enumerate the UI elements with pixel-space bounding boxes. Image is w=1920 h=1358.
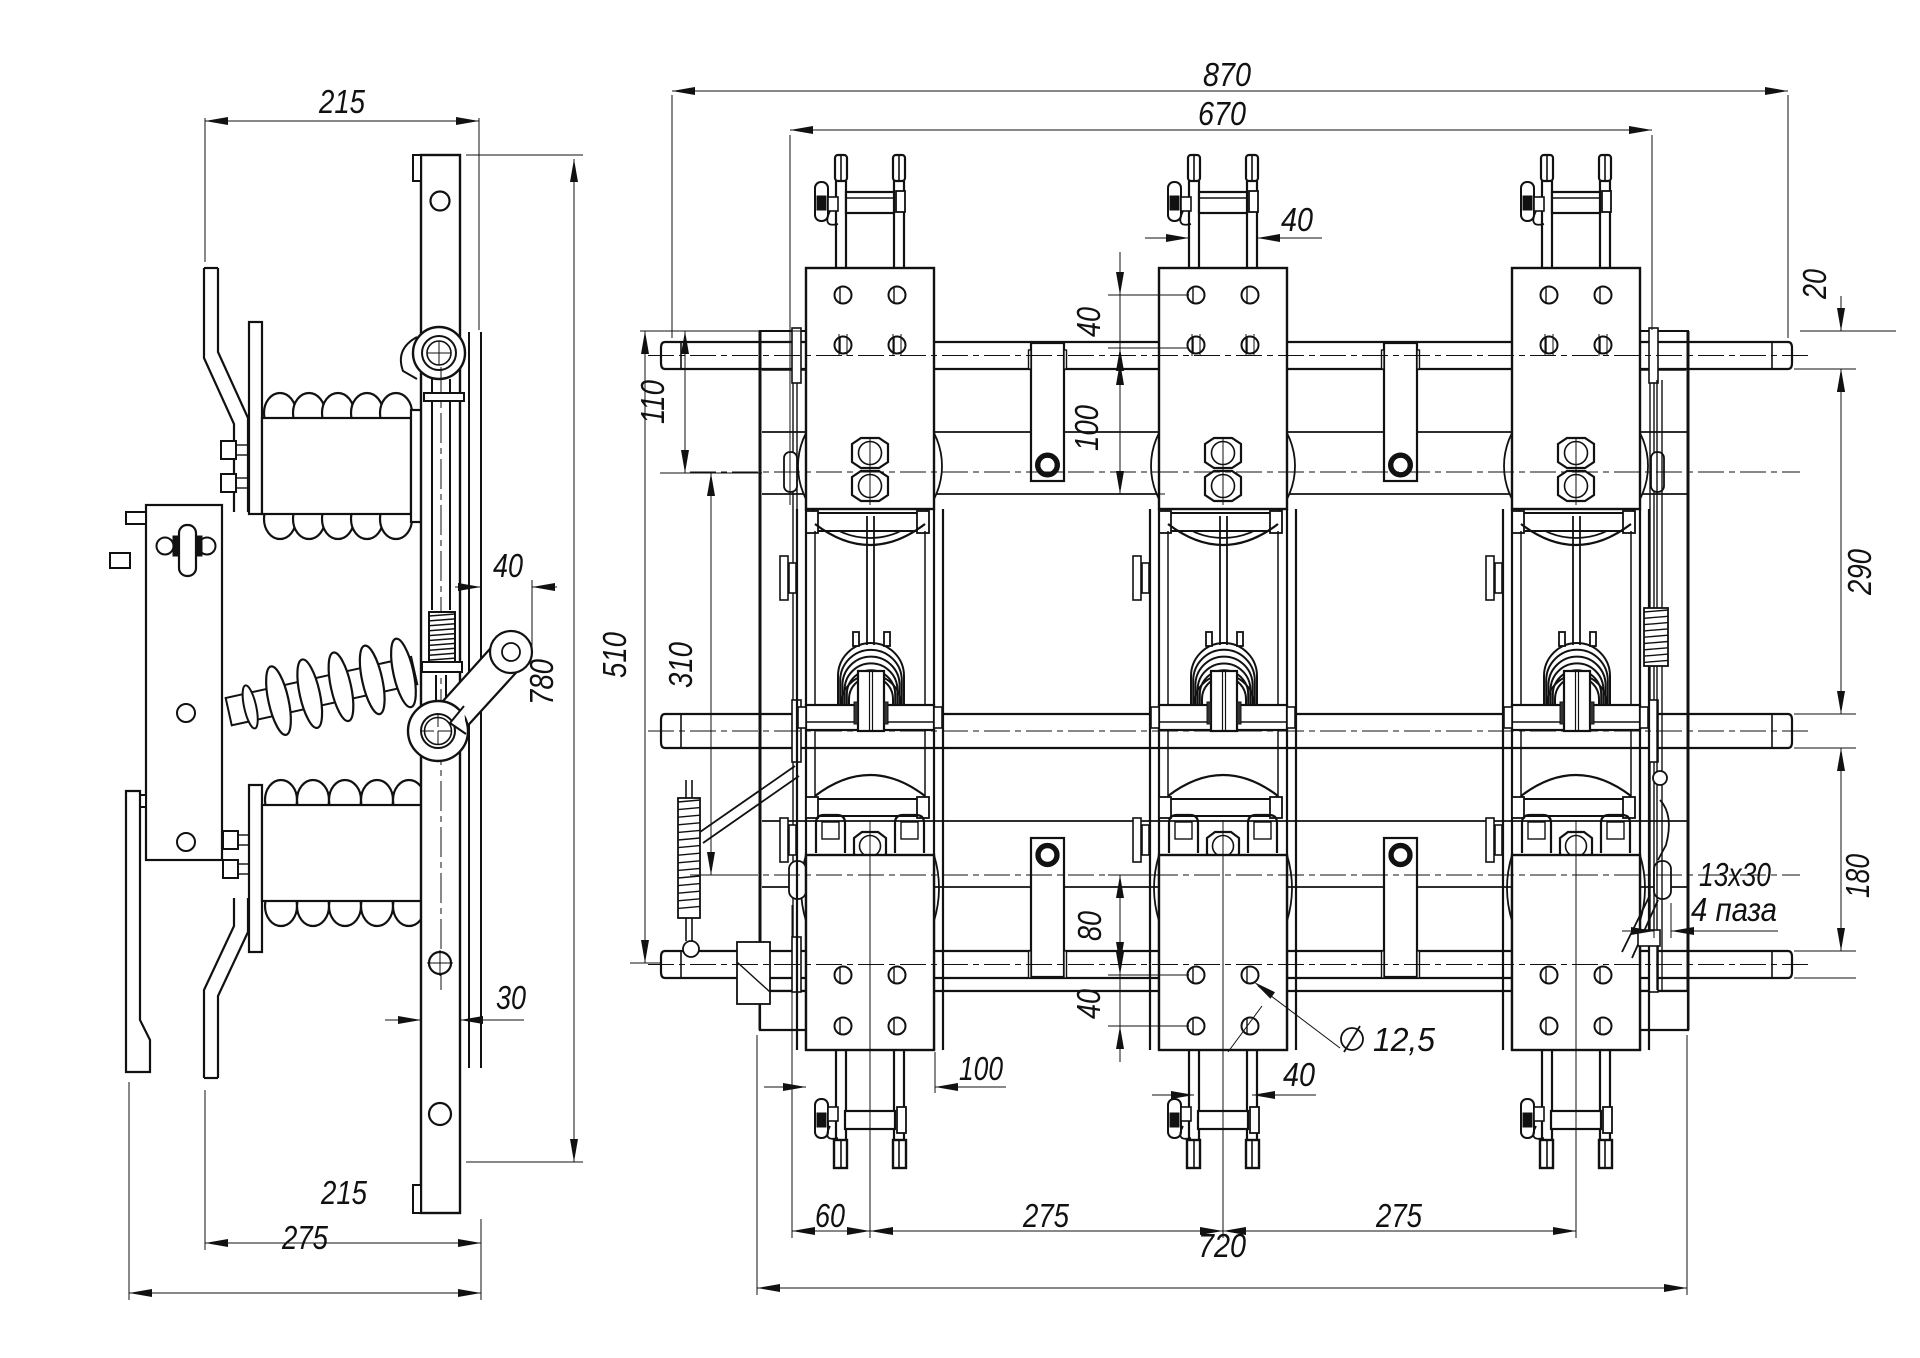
svg-text:670: 670 — [1198, 95, 1247, 132]
svg-text:40: 40 — [493, 547, 524, 584]
svg-text:780: 780 — [523, 658, 560, 705]
svg-text:20: 20 — [1796, 268, 1833, 299]
svg-text:40: 40 — [1283, 1056, 1316, 1093]
svg-text:510: 510 — [596, 631, 633, 678]
svg-text:30: 30 — [496, 979, 527, 1016]
svg-text:290: 290 — [1841, 548, 1878, 595]
svg-text:180: 180 — [1839, 853, 1876, 898]
svg-text:60: 60 — [815, 1197, 846, 1234]
svg-text:110: 110 — [634, 379, 671, 424]
svg-text:12,5: 12,5 — [1373, 1021, 1436, 1058]
svg-text:275: 275 — [281, 1219, 328, 1256]
svg-text:310: 310 — [662, 641, 699, 688]
svg-text:275: 275 — [1022, 1197, 1069, 1234]
svg-text:4 паза: 4 паза — [1691, 891, 1777, 928]
svg-text:40: 40 — [1070, 988, 1107, 1019]
svg-text:40: 40 — [1070, 306, 1107, 337]
svg-text:275: 275 — [1375, 1197, 1422, 1234]
svg-text:720: 720 — [1198, 1227, 1247, 1264]
svg-text:40: 40 — [1281, 201, 1314, 238]
svg-text:215: 215 — [318, 83, 365, 120]
svg-text:100: 100 — [1068, 404, 1105, 451]
svg-text:80: 80 — [1071, 910, 1108, 941]
svg-text:870: 870 — [1203, 56, 1252, 93]
svg-text:100: 100 — [959, 1050, 1004, 1087]
svg-text:13x30: 13x30 — [1699, 856, 1772, 893]
svg-text:215: 215 — [320, 1174, 367, 1211]
